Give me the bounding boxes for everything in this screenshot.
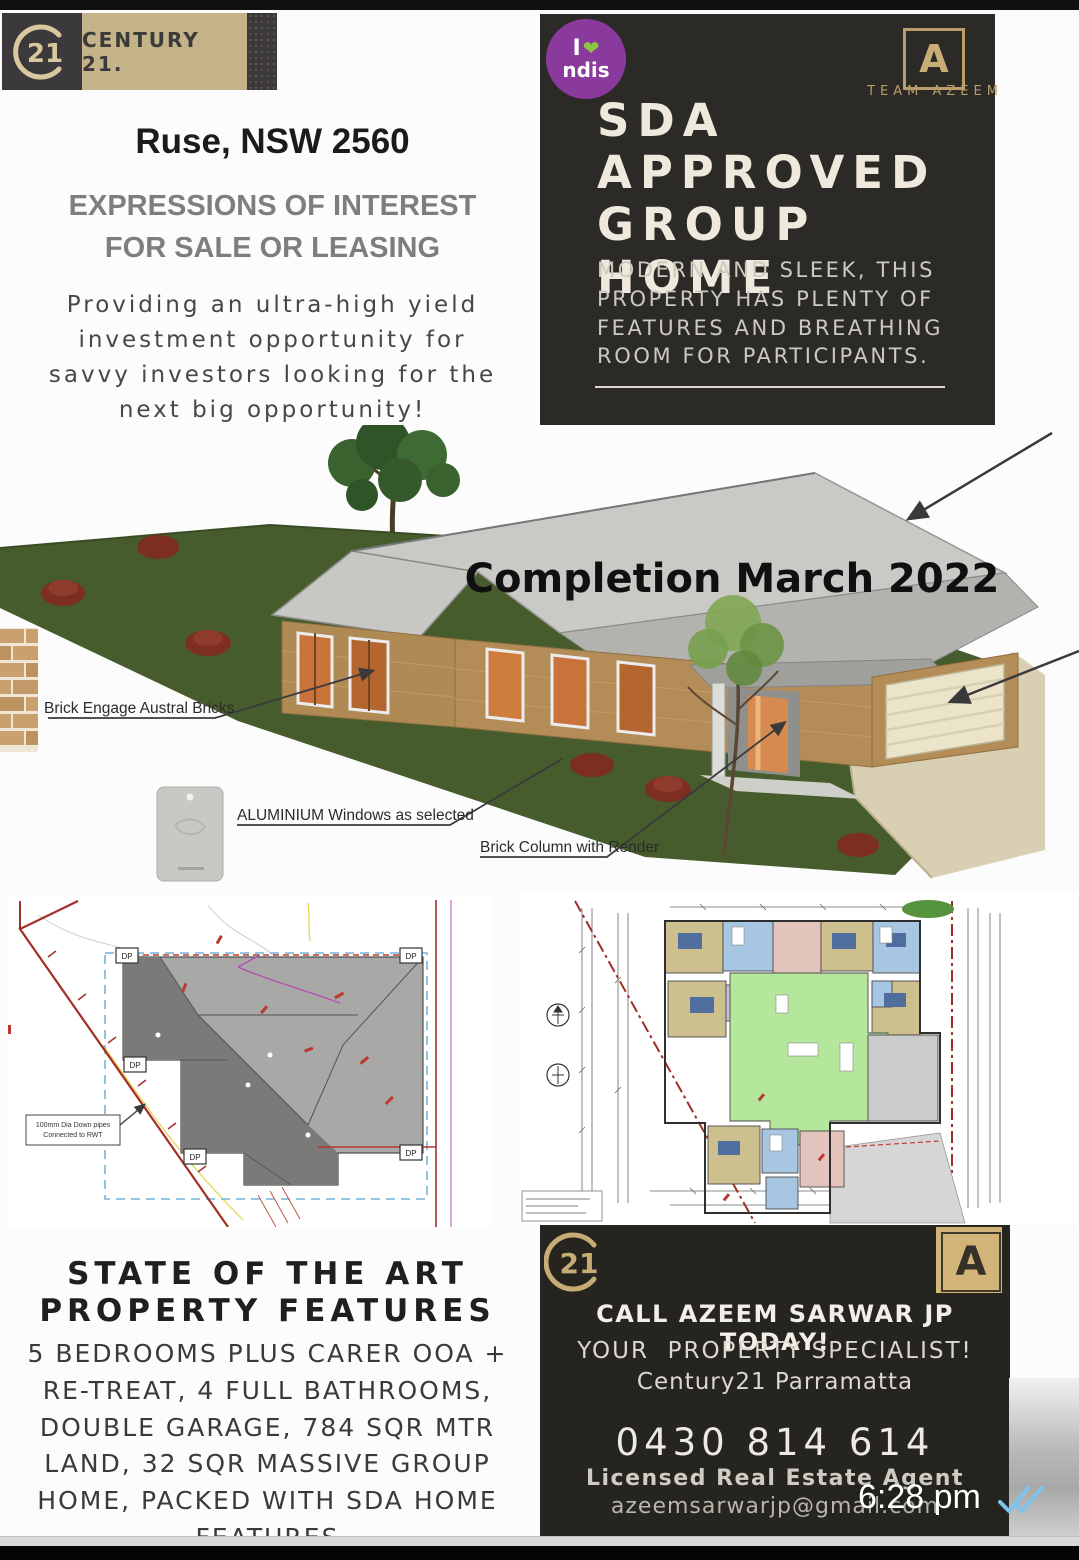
brick-swatch xyxy=(0,628,38,752)
century21-logo-box: 21 xyxy=(2,13,82,90)
site-plan-drawing: DP DP DP DP DP 100mm Dia Down pipes Conn… xyxy=(8,895,490,1227)
svg-text:Connected to RWT: Connected to RWT xyxy=(43,1132,103,1139)
eoi-line2: FOR SALE OR LEASING xyxy=(15,227,530,269)
hero-title-line: SDA xyxy=(597,95,987,147)
heart-icon: ❤ xyxy=(583,36,600,60)
ndis-i: I xyxy=(573,36,581,61)
features-line: LAND, 32 SQR MASSIVE GROUP xyxy=(10,1446,525,1483)
column-label: Brick Column with Render xyxy=(480,839,659,856)
message-timestamp: 6:28 pm xyxy=(858,1478,981,1517)
location-title: Ruse, NSW 2560 xyxy=(15,122,530,162)
features-line: DOUBLE GARAGE, 784 SQR MTR xyxy=(10,1410,525,1447)
title-block xyxy=(522,1191,602,1221)
ndis-word: ndis xyxy=(562,60,609,80)
c21-seal-icon: 21 xyxy=(544,1231,606,1293)
completion-banner: Completion March 2022 xyxy=(465,556,1000,602)
specialist-line: YOUR PROPERTY SPECIALIST! xyxy=(540,1338,1010,1364)
svg-text:DP: DP xyxy=(121,952,132,961)
hero-subtitle-line: PROPERTY HAS PLENTY OF xyxy=(597,285,977,314)
features-line: HOME, PACKED WITH SDA HOME xyxy=(10,1483,525,1520)
century21-wordmark: CENTURY 21. xyxy=(82,28,247,76)
top-black-bar xyxy=(0,0,1079,10)
team-azeem-logo-icon: A xyxy=(936,1227,1002,1293)
hero-subtitle-line: FEATURES AND BREATHING xyxy=(597,314,977,343)
century21-pattern-strip xyxy=(247,13,277,90)
hero-subtitle-line: MODERN AND SLEEK, THIS xyxy=(597,256,977,285)
intro-line: Providing an ultra-high yield xyxy=(15,288,530,323)
hero-subtitle: MODERN AND SLEEK, THIS PROPERTY HAS PLEN… xyxy=(597,256,977,371)
intro-line: savvy investors looking for the xyxy=(15,358,530,393)
team-azeem-logo-icon: A xyxy=(903,28,965,90)
hero-title-line: APPROVED xyxy=(597,147,987,199)
bricks-label: Brick Engage Austral Bricks xyxy=(44,700,235,717)
c21-seal-icon: 21 xyxy=(12,22,72,82)
tree-icon xyxy=(328,425,460,545)
office-line: Century21 Parramatta xyxy=(540,1369,1010,1395)
svg-text:DP: DP xyxy=(189,1153,200,1162)
whatsapp-image-view[interactable]: 21 CENTURY 21. Ruse, NSW 2560 EXPRESSION… xyxy=(0,0,1079,1560)
phone-number: 0430 814 614 xyxy=(540,1421,1010,1464)
eoi-heading: EXPRESSIONS OF INTEREST FOR SALE OR LEAS… xyxy=(15,185,530,269)
svg-text:DP: DP xyxy=(405,952,416,961)
intro-paragraph: Providing an ultra-high yield investment… xyxy=(15,288,530,428)
features-heading-line2: PROPERTY FEATURES xyxy=(10,1293,525,1330)
features-heading-line1: STATE OF THE ART xyxy=(10,1256,525,1293)
features-body: 5 BEDROOMS PLUS CARER OOA + RE-TREAT, 4 … xyxy=(10,1336,525,1557)
features-line: 5 BEDROOMS PLUS CARER OOA + xyxy=(10,1336,525,1373)
read-receipt-double-check-icon xyxy=(998,1484,1046,1516)
svg-text:100mm Dia Down pipes: 100mm Dia Down pipes xyxy=(36,1122,111,1129)
windows-label: ALUMINIUM Windows as selected xyxy=(237,807,474,824)
features-heading: STATE OF THE ART PROPERTY FEATURES xyxy=(10,1256,525,1329)
floor-plan-drawing xyxy=(520,893,1079,1225)
hero-divider xyxy=(595,386,945,388)
features-line: RE-TREAT, 4 FULL BATHROOMS, xyxy=(10,1373,525,1410)
intro-line: investment opportunity for xyxy=(15,323,530,358)
svg-text:DP: DP xyxy=(129,1061,140,1070)
bottom-black-bar xyxy=(0,1546,1079,1560)
aluminium-swatch-card xyxy=(157,787,223,881)
c21-monogram: 21 xyxy=(27,39,63,69)
century21-wordmark-box: CENTURY 21. xyxy=(82,13,247,90)
intro-line: next big opportunity! xyxy=(15,393,530,428)
arrow-to-roof xyxy=(910,433,1052,518)
hero-subtitle-line: ROOM FOR PARTICIPANTS. xyxy=(597,342,977,371)
ndis-badge-icon: I❤ ndis xyxy=(546,19,626,99)
hero-panel: I❤ ndis A TEAM AZEEM SDA APPROVED GROUP … xyxy=(540,14,995,425)
eoi-line1: EXPRESSIONS OF INTEREST xyxy=(15,185,530,227)
house-render: Brick Engage Austral Bricks ALUMINIUM Wi… xyxy=(0,425,1079,895)
svg-text:DP: DP xyxy=(405,1149,416,1158)
c21-monogram: 21 xyxy=(560,1247,599,1280)
